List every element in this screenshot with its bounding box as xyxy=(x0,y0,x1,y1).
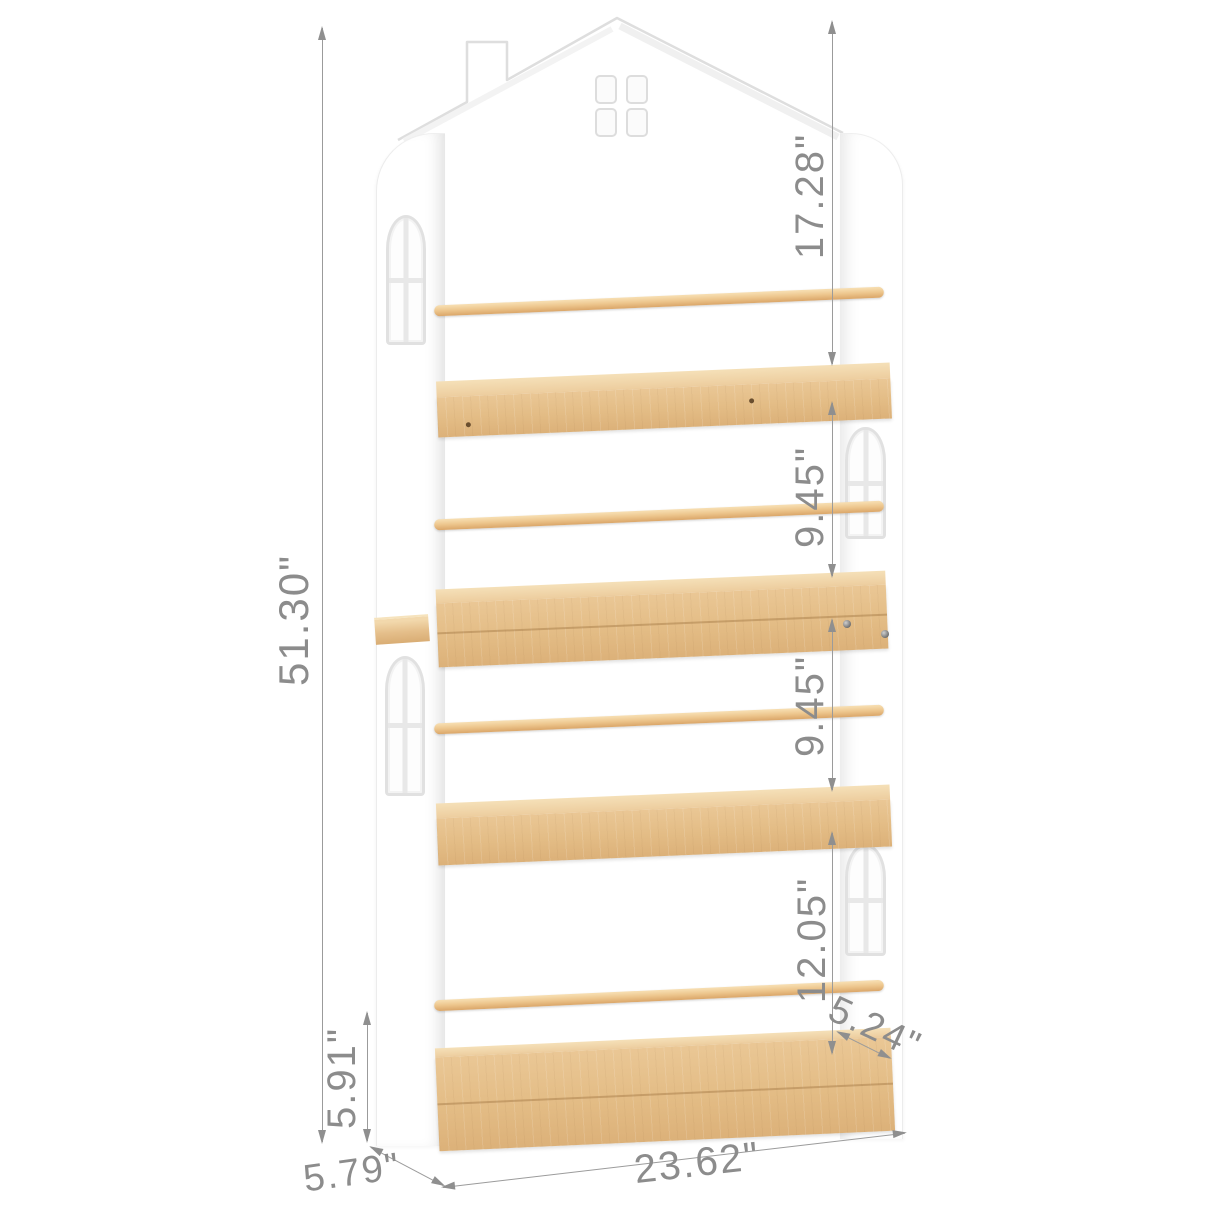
dim-label-second-section: 9.45" xyxy=(790,446,830,548)
arrow-up-icon xyxy=(363,1011,371,1025)
dim-label-total-height: 51.30" xyxy=(273,554,315,686)
dim-line-base-section xyxy=(367,1013,368,1141)
product-dimension-diagram: 51.30" 17.28" 9.45" 9.45" 12.05" xyxy=(0,0,1214,1214)
dim-label-third-section: 9.45" xyxy=(790,655,830,757)
arrow-down-icon xyxy=(828,564,836,578)
dim-label-fourth-section: 12.05" xyxy=(792,877,832,1003)
dim-label-shelf-depth: 5.24" xyxy=(823,990,927,1066)
dim-line-total-height xyxy=(322,28,323,1142)
arrow-up-icon xyxy=(828,20,836,34)
arrow-up-icon xyxy=(828,618,836,632)
arrow-down-icon xyxy=(318,1130,326,1144)
dim-label-side-depth: 5.79" xyxy=(301,1147,403,1198)
dim-label-top-section: 17.28" xyxy=(790,133,830,259)
dim-line-third-section xyxy=(832,620,833,790)
arrow-up-icon xyxy=(828,831,836,845)
arrow-left-icon xyxy=(441,1181,456,1191)
arrow-down-icon xyxy=(828,1041,836,1055)
dim-line-top-section xyxy=(832,22,833,364)
dim-line-second-section xyxy=(832,403,833,576)
arrow-down-icon xyxy=(828,778,836,792)
dim-label-base-section: 5.91" xyxy=(322,1027,362,1129)
dimension-annotations: 51.30" 17.28" 9.45" 9.45" 12.05" xyxy=(0,0,1214,1214)
dim-label-overall-width: 23.62" xyxy=(632,1136,762,1190)
arrow-down-icon xyxy=(363,1129,371,1143)
arrow-down-icon xyxy=(828,352,836,366)
arrow-up-icon xyxy=(828,401,836,415)
arrow-up-icon xyxy=(318,26,326,40)
arrow-right-icon xyxy=(892,1128,907,1138)
